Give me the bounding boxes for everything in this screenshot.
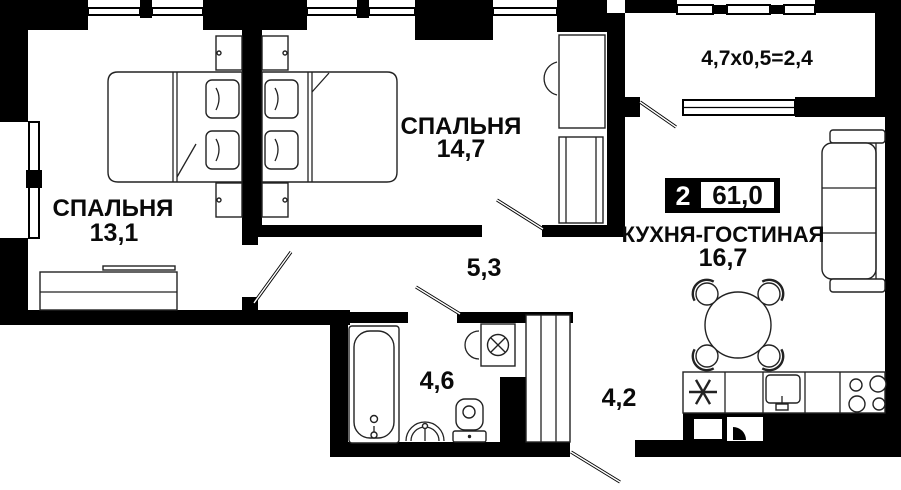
closet — [526, 315, 570, 442]
sofa — [822, 143, 876, 279]
pillow — [206, 131, 239, 169]
washing-machine-door — [465, 331, 479, 359]
apartment-floor-plan: 2 61,0 СПАЛЬНЯ 13,1 СПАЛЬНЯ 14,7 4,7х0,5… — [0, 0, 901, 490]
apartment-badge: 2 61,0 — [665, 178, 780, 213]
balcony-window — [727, 5, 770, 14]
wall — [203, 0, 307, 30]
window — [152, 8, 203, 15]
floor-plan-svg: 2 61,0 СПАЛЬНЯ 13,1 СПАЛЬНЯ 14,7 4,7х0,5… — [0, 0, 901, 490]
hallway-area: 5,3 — [467, 254, 502, 282]
wall — [622, 97, 640, 117]
wall-niche — [694, 419, 722, 439]
wall-right — [885, 117, 901, 457]
window — [493, 8, 557, 15]
pillow — [206, 80, 239, 118]
wall — [357, 0, 369, 18]
pillow — [265, 131, 298, 169]
wall — [542, 225, 615, 237]
wall — [875, 13, 901, 117]
wall — [415, 0, 493, 40]
wall — [348, 312, 408, 323]
entrance-niche — [694, 417, 763, 441]
bedroom-left-furniture — [40, 36, 242, 310]
wall — [713, 5, 727, 14]
wall — [0, 310, 350, 325]
wall — [330, 442, 570, 457]
wall-kitchen-divider — [607, 13, 625, 237]
window — [307, 8, 357, 15]
kitchen-sink — [766, 375, 800, 403]
balcony-size-label: 4,7х0,5=2,4 — [701, 47, 813, 70]
bathtub-drain — [371, 416, 378, 423]
bathtub-tap — [371, 432, 377, 438]
door-bedroom-left — [254, 241, 301, 303]
wall — [770, 5, 784, 14]
window — [369, 8, 415, 15]
window-mullion — [26, 170, 42, 188]
hall-closet — [526, 315, 570, 442]
wall — [815, 0, 901, 13]
balcony-window — [784, 5, 815, 14]
balcony-window — [677, 5, 713, 14]
wall — [0, 0, 88, 30]
bedroom-top-area: 14,7 — [437, 135, 486, 163]
wall — [0, 30, 28, 122]
badge-total-area: 61,0 — [712, 180, 763, 210]
kitchen-living-area: 16,7 — [699, 244, 748, 272]
bedroom-left-area: 13,1 — [90, 219, 139, 247]
door-bathroom — [405, 277, 460, 314]
door-balcony — [640, 102, 687, 137]
bedroom-left-label: СПАЛЬНЯ — [53, 195, 174, 222]
sofa-armrest — [830, 279, 885, 292]
wall-between-bedrooms — [242, 30, 262, 237]
door-bedroom-top — [486, 190, 543, 229]
wall — [625, 0, 677, 13]
wall — [140, 0, 152, 18]
pillow — [265, 80, 298, 118]
door-entrance — [571, 452, 631, 490]
wall-bottom — [635, 440, 901, 457]
wall — [795, 97, 875, 117]
wall — [557, 0, 607, 32]
washbasin-tap — [423, 424, 428, 429]
dresser-shelf — [103, 266, 175, 270]
desk — [559, 35, 605, 128]
bathroom-area: 4,6 — [420, 367, 455, 395]
entry-area: 4,2 — [602, 384, 637, 412]
wall-toilet-niche — [500, 377, 527, 443]
desk-chair — [544, 62, 557, 95]
dresser — [40, 272, 177, 310]
wall — [258, 225, 482, 237]
badge-rooms-count: 2 — [675, 181, 690, 211]
window — [88, 8, 140, 15]
wall-bathroom-left — [330, 312, 348, 457]
sofa-armrest — [830, 130, 885, 143]
wall — [242, 237, 258, 245]
kitchen-sink-tap — [776, 404, 788, 410]
